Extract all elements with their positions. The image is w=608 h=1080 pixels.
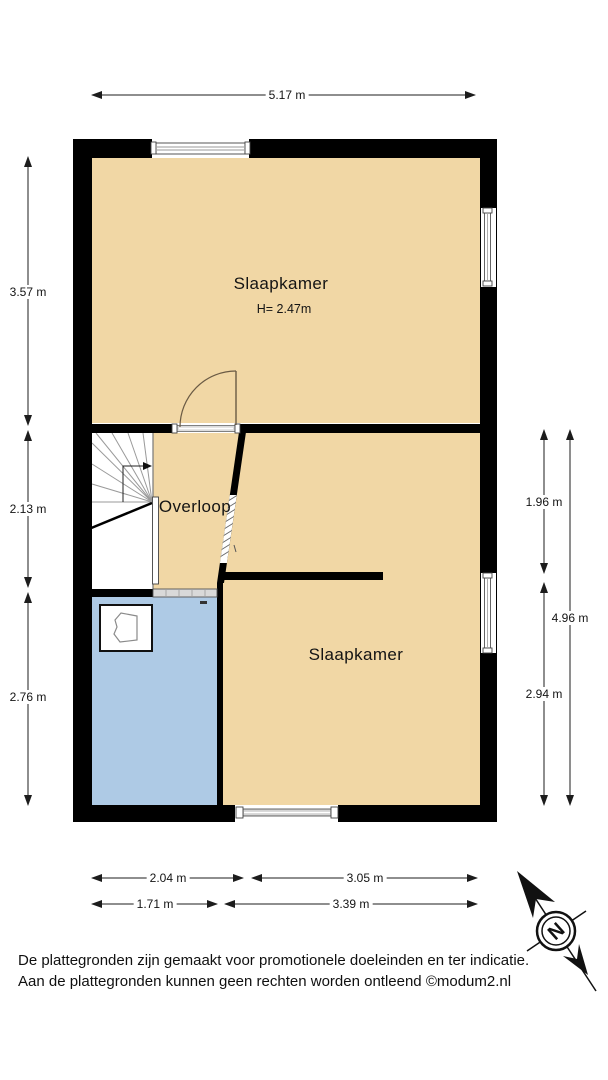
room-label-bedroom-2: Slaapkamer (309, 645, 404, 665)
radiator-mark (200, 601, 207, 604)
dim-left-1-label: 3.57 m (7, 285, 50, 299)
disclaimer-line-2: Aan de plattegronden kunnen geen rechten… (18, 971, 529, 992)
dim-bottom-2a-label: 1.71 m (134, 897, 177, 911)
dim-right-3-label: 2.94 m (523, 687, 566, 701)
dim-bottom-2b-label: 3.39 m (330, 897, 373, 911)
window-right-lower (481, 573, 496, 653)
dim-right-1-label: 1.96 m (523, 495, 566, 509)
dim-right-2-label: 4.96 m (549, 611, 592, 625)
room-fills (92, 158, 480, 805)
stair-railing (153, 497, 159, 584)
wall-partial-bedroom2 (220, 572, 383, 580)
room-label-landing: Overloop (159, 497, 231, 517)
window-right-upper (481, 208, 496, 287)
room-label-bedroom-1: Slaapkamer (234, 274, 329, 294)
bathroom-door-threshold (153, 589, 217, 597)
disclaimer-line-1: De plattegronden zijn gemaakt voor promo… (18, 950, 529, 971)
wall-bathroom-bedroom2 (217, 583, 223, 805)
window-top (151, 139, 250, 158)
disclaimer-text: De plattegronden zijn gemaakt voor promo… (18, 950, 529, 992)
dim-bottom-1a-label: 2.04 m (147, 871, 190, 885)
floorplan-drawing: N (0, 0, 608, 1080)
dim-bottom-1b-label: 3.05 m (344, 871, 387, 885)
room-height-bedroom-1: H= 2.47m (257, 302, 312, 316)
wall-bathroom-top (92, 589, 153, 597)
stairwell-floor (92, 433, 153, 589)
dim-top-label: 5.17 m (266, 88, 309, 102)
wall-top (73, 139, 497, 158)
dim-left-3-label: 2.76 m (7, 690, 50, 704)
wall-left (73, 139, 92, 822)
wall-bedroom1-right (240, 424, 480, 433)
floorplan-page: N 5.17 m 3.57 m 2.13 m 2.76 m 1.96 m 4.9… (0, 0, 608, 1080)
dim-left-2-label: 2.13 m (7, 502, 50, 516)
window-bottom (235, 805, 338, 822)
